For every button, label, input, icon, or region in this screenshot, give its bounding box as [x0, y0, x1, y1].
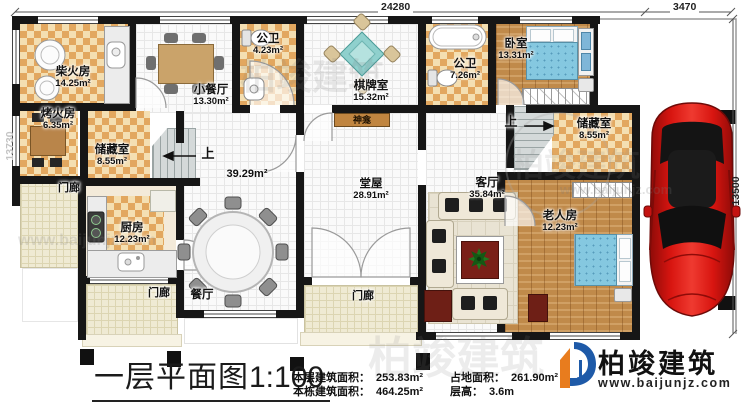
- blanket: [526, 42, 578, 80]
- room-label-bath1: 公卫4.23m²: [253, 33, 283, 56]
- window: [432, 16, 478, 24]
- room-label-main-hall: 堂屋28.91m²: [353, 178, 388, 201]
- wall-segment: [296, 172, 304, 318]
- sofa-chaise: [452, 288, 508, 320]
- car-nose-line: [668, 294, 716, 300]
- dining-chair: [192, 33, 206, 43]
- wardrobe-shelf: [581, 53, 591, 71]
- room-label-bath2: 公卫7.26m²: [450, 58, 480, 81]
- dim-garage-width: 3470: [670, 1, 699, 13]
- window: [520, 16, 572, 24]
- sofa-cushion: [432, 229, 446, 243]
- stair-hatch-elder: [572, 182, 638, 198]
- shrine-label: 神龛: [335, 114, 389, 126]
- room-label-storage-right: 储藏室8.55m²: [577, 118, 612, 141]
- wall-segment: [526, 105, 640, 113]
- sofa-left: [426, 220, 454, 288]
- wall-segment: [78, 184, 86, 340]
- dim-left-height: 13730: [4, 117, 16, 175]
- room-label-elder: 老人房12.23m²: [542, 210, 577, 233]
- firewood-counter: [104, 26, 130, 104]
- window: [160, 16, 230, 24]
- stats-left: 本层建筑面积：253.83m² 本栋建筑面积：464.25m²: [293, 372, 423, 399]
- logo-url: www.baijunjz.com: [598, 376, 731, 390]
- window: [204, 310, 276, 318]
- floor-plan-page: 神龛: [0, 0, 750, 407]
- tv-cabinet: [424, 290, 452, 322]
- column: [717, 110, 736, 124]
- bedroom-wardrobe: [578, 28, 594, 76]
- column: [416, 353, 430, 370]
- pillow: [619, 238, 631, 259]
- sofa-cushion: [445, 198, 459, 212]
- floor-dining-hall: [184, 113, 296, 318]
- wall-segment: [632, 105, 640, 340]
- coffee-table: [456, 236, 504, 284]
- room-label-chess: 棋牌室15.32m²: [353, 80, 388, 103]
- pillow: [553, 29, 574, 42]
- dining-outside-strip: [184, 318, 298, 344]
- wall-segment: [296, 113, 304, 135]
- window: [12, 30, 20, 84]
- kitchen-counter-bottom: [87, 250, 177, 278]
- bedroom-nightstand: [578, 78, 594, 92]
- stat-floor-height: 层高：3.6m: [450, 386, 558, 400]
- porch-label-center: 门廊: [352, 290, 374, 302]
- car-rear-window: [660, 122, 724, 164]
- wall-segment: [410, 277, 426, 285]
- wall-segment: [176, 111, 184, 143]
- wall-segment: [280, 105, 304, 113]
- wall-segment: [426, 105, 496, 113]
- blanket: [575, 234, 617, 286]
- wall-segment: [332, 105, 426, 113]
- wardrobe-shelf: [581, 32, 591, 50]
- room-label-bedroom: 卧室13.31m²: [498, 38, 533, 61]
- car-hood-line: [664, 255, 720, 263]
- car-mirror: [644, 206, 652, 217]
- window: [38, 16, 98, 24]
- room-label-firewood: 柴火房14.25m²: [55, 66, 90, 89]
- car-top-view: [644, 103, 740, 316]
- wall-segment: [232, 24, 240, 113]
- plan-title-text: 一层平面图: [94, 361, 249, 394]
- wall-segment: [296, 277, 312, 285]
- stats-right: 占地面积：261.90m² 层高：3.6m: [450, 372, 558, 399]
- wall-segment: [12, 16, 600, 24]
- elder-nightstand: [614, 288, 632, 302]
- dining-chair: [164, 33, 178, 43]
- porch-label-left: 门廊: [58, 182, 80, 194]
- left-outside-strip: [22, 268, 78, 322]
- dining-area-label: 39.29m²: [227, 168, 268, 180]
- heating-chair: [50, 158, 62, 167]
- sofa-cushion: [469, 198, 483, 212]
- kitchen-fridge: [150, 190, 176, 212]
- wall-segment: [296, 24, 304, 113]
- dining-chair: [164, 84, 178, 94]
- dining-chair: [214, 56, 224, 70]
- room-label-living: 客厅35.84m²: [469, 177, 504, 200]
- up-label-left: 上: [201, 147, 214, 161]
- pillow: [619, 261, 631, 282]
- elder-cabinet: [528, 294, 548, 322]
- window: [307, 16, 388, 24]
- bedroom-bed: [526, 26, 578, 80]
- stat-building-area: 本栋建筑面积：464.25m²: [293, 386, 423, 400]
- wall-segment: [418, 24, 426, 150]
- logo-icon: [554, 338, 598, 394]
- small-dining-table: [158, 44, 214, 84]
- stat-land-area: 占地面积：261.90m²: [450, 372, 558, 386]
- wall-segment: [176, 178, 184, 240]
- sofa-cushion: [432, 259, 446, 273]
- stat-floor-area: 本层建筑面积：253.83m²: [293, 372, 423, 386]
- porch-kitchen-step: [82, 334, 182, 347]
- room-label-heating: 烤火房6.35m²: [41, 108, 76, 131]
- window: [436, 332, 512, 340]
- up-label-right: 上: [504, 115, 517, 129]
- heating-chair: [32, 158, 44, 167]
- sofa-cushion: [483, 296, 497, 310]
- column: [718, 296, 736, 310]
- car-windshield: [658, 206, 726, 249]
- sofa-cushion: [461, 296, 475, 310]
- sofa-cushion: [493, 198, 507, 212]
- dim-top-main: 24280: [378, 1, 413, 13]
- stairs-right: [514, 106, 554, 170]
- car-roof: [668, 150, 716, 208]
- porch-label-kitchen: 门廊: [148, 287, 170, 299]
- room-label-storage-left: 储藏室8.55m²: [95, 144, 130, 167]
- wall-segment: [497, 172, 640, 180]
- stairs-left: [152, 128, 196, 180]
- dim-right-height: 13500: [730, 161, 742, 221]
- room-label-kitchen: 厨房12.23m²: [114, 222, 149, 245]
- coffee-table-top: [461, 241, 499, 279]
- wall-segment: [80, 111, 88, 184]
- shrine: 神龛: [334, 113, 390, 127]
- elder-bed: [574, 234, 633, 286]
- dining-chair: [146, 56, 156, 70]
- wall-segment: [488, 16, 496, 113]
- room-label-dining: 餐厅: [191, 289, 214, 302]
- wall-segment: [232, 105, 250, 113]
- porch-center-step: [300, 332, 422, 346]
- room-label-small-dining: 小餐厅13.30m²: [193, 84, 228, 107]
